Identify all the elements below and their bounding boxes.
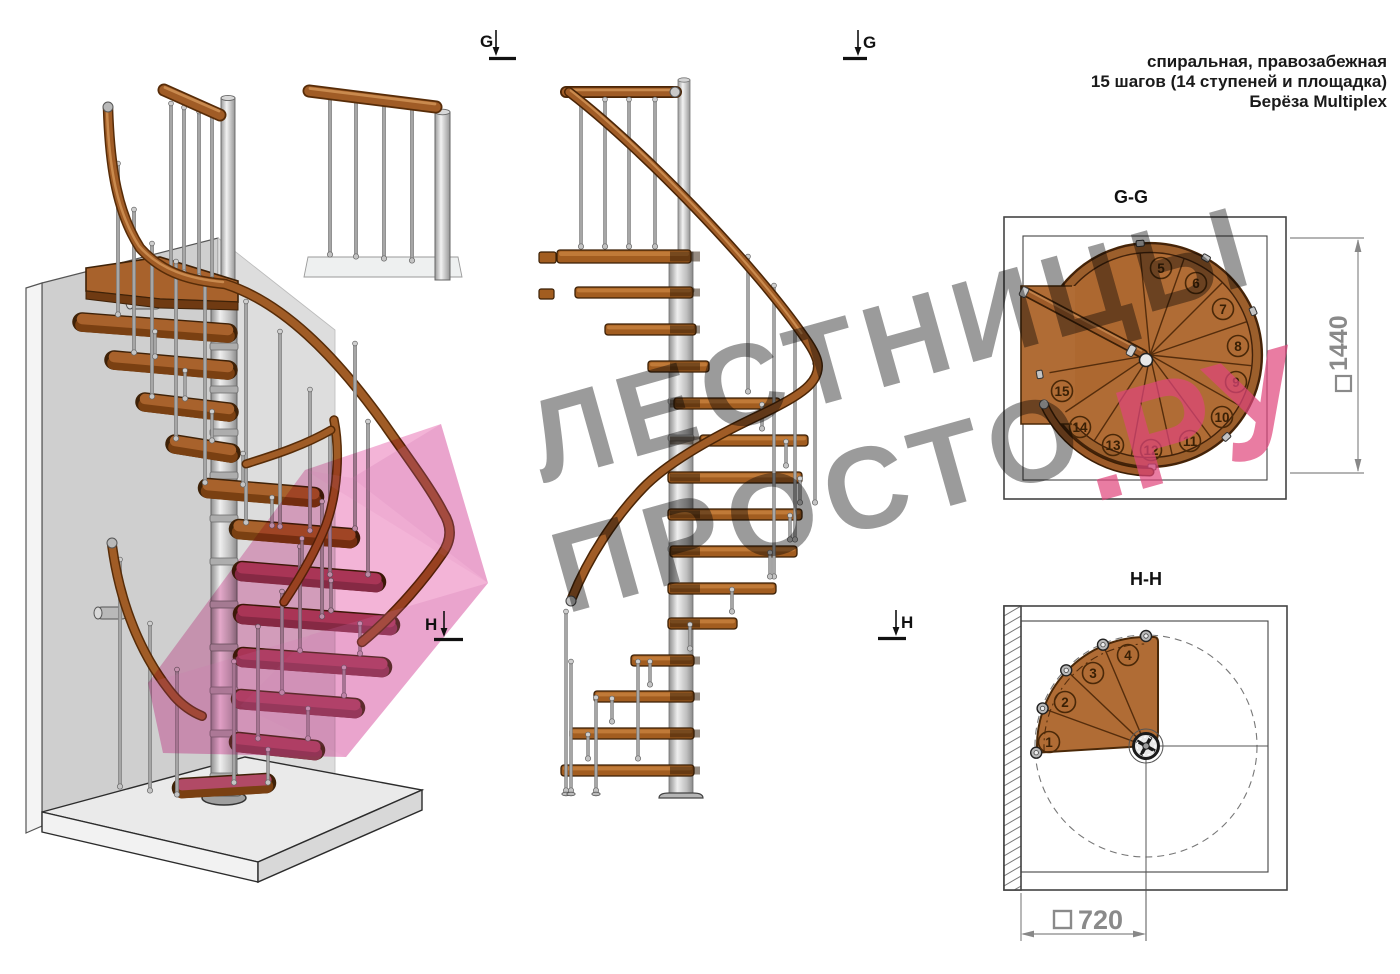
svg-text:спиральная, правозабежная: спиральная, правозабежная	[1147, 52, 1387, 71]
svg-text:G-G: G-G	[1114, 187, 1148, 207]
svg-text:H-H: H-H	[1130, 569, 1162, 589]
svg-text:2: 2	[1061, 695, 1069, 710]
svg-text:1440: 1440	[1325, 315, 1353, 371]
svg-text:H: H	[425, 615, 437, 634]
svg-text:1: 1	[1045, 735, 1053, 750]
svg-text:3: 3	[1089, 666, 1097, 681]
svg-text:G: G	[480, 32, 493, 51]
svg-text:4: 4	[1124, 648, 1132, 663]
svg-text:15 шагов (14 ступеней и площад: 15 шагов (14 ступеней и площадка)	[1091, 72, 1387, 91]
svg-text:Берёза Multiplex: Берёза Multiplex	[1249, 92, 1387, 111]
svg-text:G: G	[863, 33, 876, 52]
svg-text:H: H	[901, 613, 913, 632]
svg-text:720: 720	[1078, 905, 1123, 935]
